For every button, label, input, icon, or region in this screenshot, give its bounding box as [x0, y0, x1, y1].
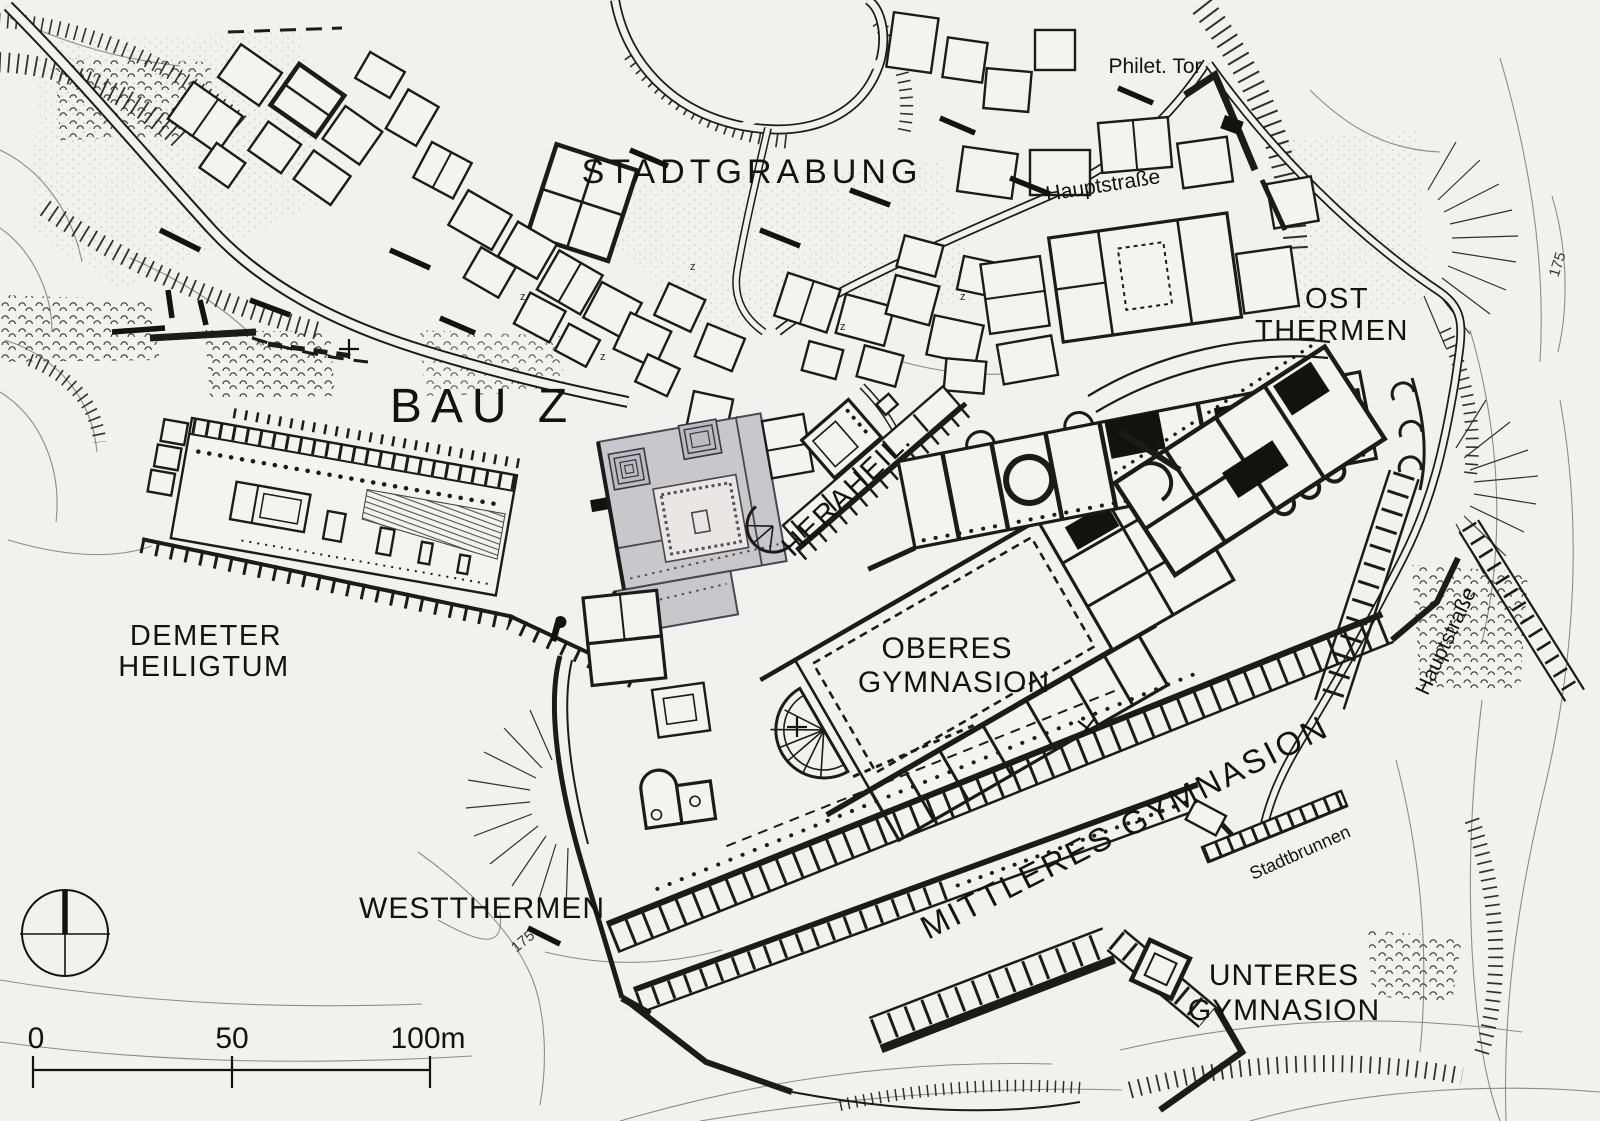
slope-fan-westthermen [466, 710, 568, 910]
label-demeter-1: DEMETER [130, 620, 282, 652]
label-contour-175-east: 175 [1546, 250, 1570, 279]
scale-tick-50: 50 [215, 1022, 248, 1055]
svg-text:z: z [690, 261, 696, 273]
archaeological-site-map: z z z z z [0, 0, 1600, 1121]
svg-text:z: z [520, 291, 526, 303]
label-oberes-1: OBERES [881, 632, 1012, 665]
slope-fan-northeast [1424, 142, 1518, 348]
label-westthermen: WESTTHERMEN [359, 892, 605, 925]
svg-text:z: z [840, 321, 846, 333]
compass-icon [20, 890, 110, 976]
mosaic-room-north [678, 419, 721, 459]
scale-bar: 0 50 100m [28, 1022, 466, 1088]
label-ost-thermen-1: OST [1305, 283, 1369, 315]
label-unteres-1: UNTERES [1209, 959, 1359, 992]
label-philet-tor: Philet. Tor [1109, 55, 1202, 78]
scale-tick-0: 0 [28, 1022, 45, 1055]
label-oberes-2: GYMNASION [858, 666, 1050, 699]
label-demeter-2: HEILIGTUM [118, 651, 289, 683]
apse-bath-building [638, 763, 715, 828]
gymnasium-east-wing [1315, 470, 1418, 709]
peristyle-house-block [1049, 213, 1242, 342]
lower-gymnasium-plan [626, 928, 1242, 1110]
map-canvas: z z z z z [0, 0, 1600, 1121]
label-stadtgrabung: STADTGRABUNG [582, 153, 923, 191]
west-thermen-plan [550, 590, 716, 1014]
svg-text:z: z [600, 351, 606, 363]
label-unteres-2: GYMNASION [1188, 994, 1380, 1027]
slope-fan-east [1446, 388, 1538, 574]
mosaic-room-west [608, 448, 650, 490]
svg-text:z: z [960, 291, 966, 303]
label-bau-z: BAU Z [390, 380, 576, 433]
scale-tick-100m: 100m [390, 1022, 465, 1055]
label-ost-thermen-2: THERMEN [1255, 315, 1409, 347]
